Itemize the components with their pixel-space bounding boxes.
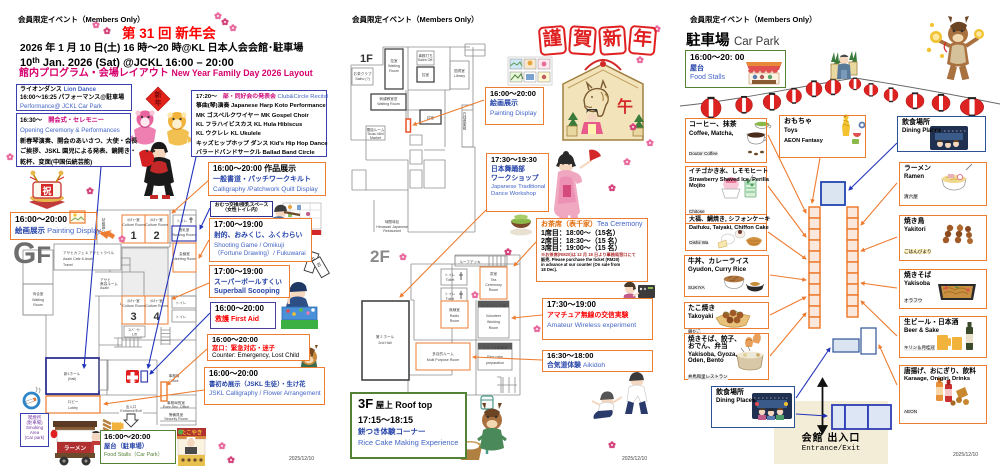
- svg-text:第 2 ホール: 第 2 ホール: [376, 334, 395, 339]
- svg-text:Room: Room: [489, 288, 499, 292]
- svg-text:Volunteer: Volunteer: [486, 314, 502, 318]
- svg-text:Culture Room: Culture Room: [122, 223, 144, 227]
- svg-text:Exec.Sec. Office: Exec.Sec. Office: [163, 405, 190, 409]
- svg-text:刺繍教室窓: 刺繍教室窓: [380, 96, 398, 101]
- svg-text:待合室: 待合室: [33, 291, 44, 296]
- svg-text:Toilet: Toilet: [446, 297, 454, 301]
- svg-text:味間味処: 味間味処: [385, 219, 400, 224]
- svg-text:新1ホール: 新1ホール: [64, 371, 81, 376]
- svg-text:Travel: Travel: [63, 263, 73, 267]
- svg-text:トイレ: トイレ: [445, 273, 456, 277]
- svg-text:Room: Room: [450, 319, 460, 323]
- svg-text:2F: 2F: [370, 247, 390, 266]
- svg-text:(Hall): (Hall): [68, 377, 77, 381]
- svg-text:ｶﾙﾁｬｰ室: ｶﾙﾁｬｰ室: [150, 217, 163, 222]
- svg-text:Library: Library: [454, 74, 465, 78]
- svg-text:Asahi Cafe & Asahi: Asahi Cafe & Asahi: [63, 257, 94, 261]
- svg-text:お茶クラブ: お茶クラブ: [354, 71, 372, 76]
- svg-text:ｴﾚﾍﾞｰﾀｰ: ｴﾚﾍﾞｰﾀｰ: [128, 327, 141, 332]
- svg-text:ｶﾙﾁｬｰ室: ｶﾙﾁｬｰ室: [150, 298, 163, 303]
- svg-text:first aid: first aid: [129, 380, 135, 383]
- svg-text:Waiting: Waiting: [32, 298, 44, 302]
- svg-text:Room: Room: [489, 326, 499, 330]
- svg-text:たこやき: たこやき: [181, 429, 203, 437]
- svg-text:トイレ: トイレ: [176, 301, 187, 305]
- svg-text:Lobby: Lobby: [68, 406, 78, 410]
- svg-text:祝: 祝: [42, 185, 51, 196]
- svg-text:ｶﾙﾁｬｰ室: ｶﾙﾁｬｰ室: [127, 298, 140, 303]
- svg-text:Room: Room: [33, 303, 43, 307]
- svg-text:Saiho (?): Saiho (?): [355, 77, 370, 81]
- svg-text:preparation: preparation: [486, 361, 504, 365]
- svg-text:Lift: Lift: [132, 333, 137, 337]
- svg-text:3: 3: [130, 311, 136, 323]
- svg-text:Room: Room: [389, 69, 399, 73]
- svg-text:控室: 控室: [422, 72, 430, 77]
- svg-text:Ceremony: Ceremony: [485, 283, 502, 287]
- svg-text:Sales Off.: Sales Off.: [418, 58, 434, 62]
- svg-text:Culture Room: Culture Room: [122, 304, 144, 308]
- svg-text:Waiting: Waiting: [388, 64, 400, 68]
- svg-text:ロビー: ロビー: [68, 399, 79, 404]
- svg-text:ラーメン: ラーメン: [64, 445, 87, 452]
- svg-text:Toilet: Toilet: [446, 278, 454, 282]
- svg-text:午: 午: [617, 97, 633, 116]
- svg-text:多目的ルーム: 多目的ルーム: [432, 351, 454, 356]
- svg-text:トイレ: トイレ: [176, 315, 187, 319]
- svg-text:アサヒカフェ & アサヒトラベル: アサヒカフェ & アサヒトラベル: [63, 250, 115, 255]
- svg-text:ルーフデッキ: ルーフデッキ: [459, 259, 481, 264]
- svg-text:Asahi: Asahi: [100, 286, 109, 290]
- svg-text:Nursing Room: Nursing Room: [173, 233, 196, 237]
- svg-text:無線室: 無線室: [449, 307, 460, 312]
- svg-text:控室: 控室: [390, 58, 398, 63]
- svg-text:茶室: 茶室: [490, 271, 498, 276]
- svg-text:1F: 1F: [360, 53, 373, 65]
- svg-text:2nd Hall: 2nd Hall: [378, 341, 391, 345]
- svg-text:幼稚園へ: 幼稚園へ: [101, 217, 106, 232]
- svg-text:Culture Room: Culture Room: [145, 304, 167, 308]
- svg-text:トイレ: トイレ: [445, 292, 456, 296]
- svg-text:2: 2: [153, 230, 159, 242]
- svg-text:Multi Purpose Room: Multi Purpose Room: [427, 358, 460, 362]
- svg-text:白球倶楽部: 白球倶楽部: [462, 111, 467, 130]
- svg-text:年: 年: [155, 98, 162, 107]
- svg-text:Tea: Tea: [491, 278, 497, 282]
- svg-text:Radio: Radio: [450, 314, 459, 318]
- svg-text:Meeting Room: Meeting Room: [173, 257, 196, 261]
- svg-text:ボランティア室: ボランティア室: [481, 303, 506, 308]
- svg-text:新: 新: [155, 90, 162, 99]
- svg-text:もちつき準備室: もちつき準備室: [482, 345, 508, 350]
- svg-text:Restaurant: Restaurant: [383, 229, 401, 233]
- svg-text:Culture Room: Culture Room: [145, 223, 167, 227]
- svg-text:Entrance/Exit: Entrance/Exit: [120, 409, 141, 413]
- svg-text:Security Room: Security Room: [164, 417, 188, 421]
- svg-text:会議室: 会議室: [179, 251, 190, 256]
- svg-text:Market: Market: [370, 136, 381, 140]
- svg-text:1: 1: [130, 230, 136, 242]
- svg-text:図書室: 図書室: [454, 68, 465, 73]
- svg-text:Waiting Room: Waiting Room: [377, 102, 399, 106]
- svg-text:ｶﾙﾁｬｰ室: ｶﾙﾁｬｰ室: [127, 217, 140, 222]
- svg-text:Working: Working: [487, 320, 500, 324]
